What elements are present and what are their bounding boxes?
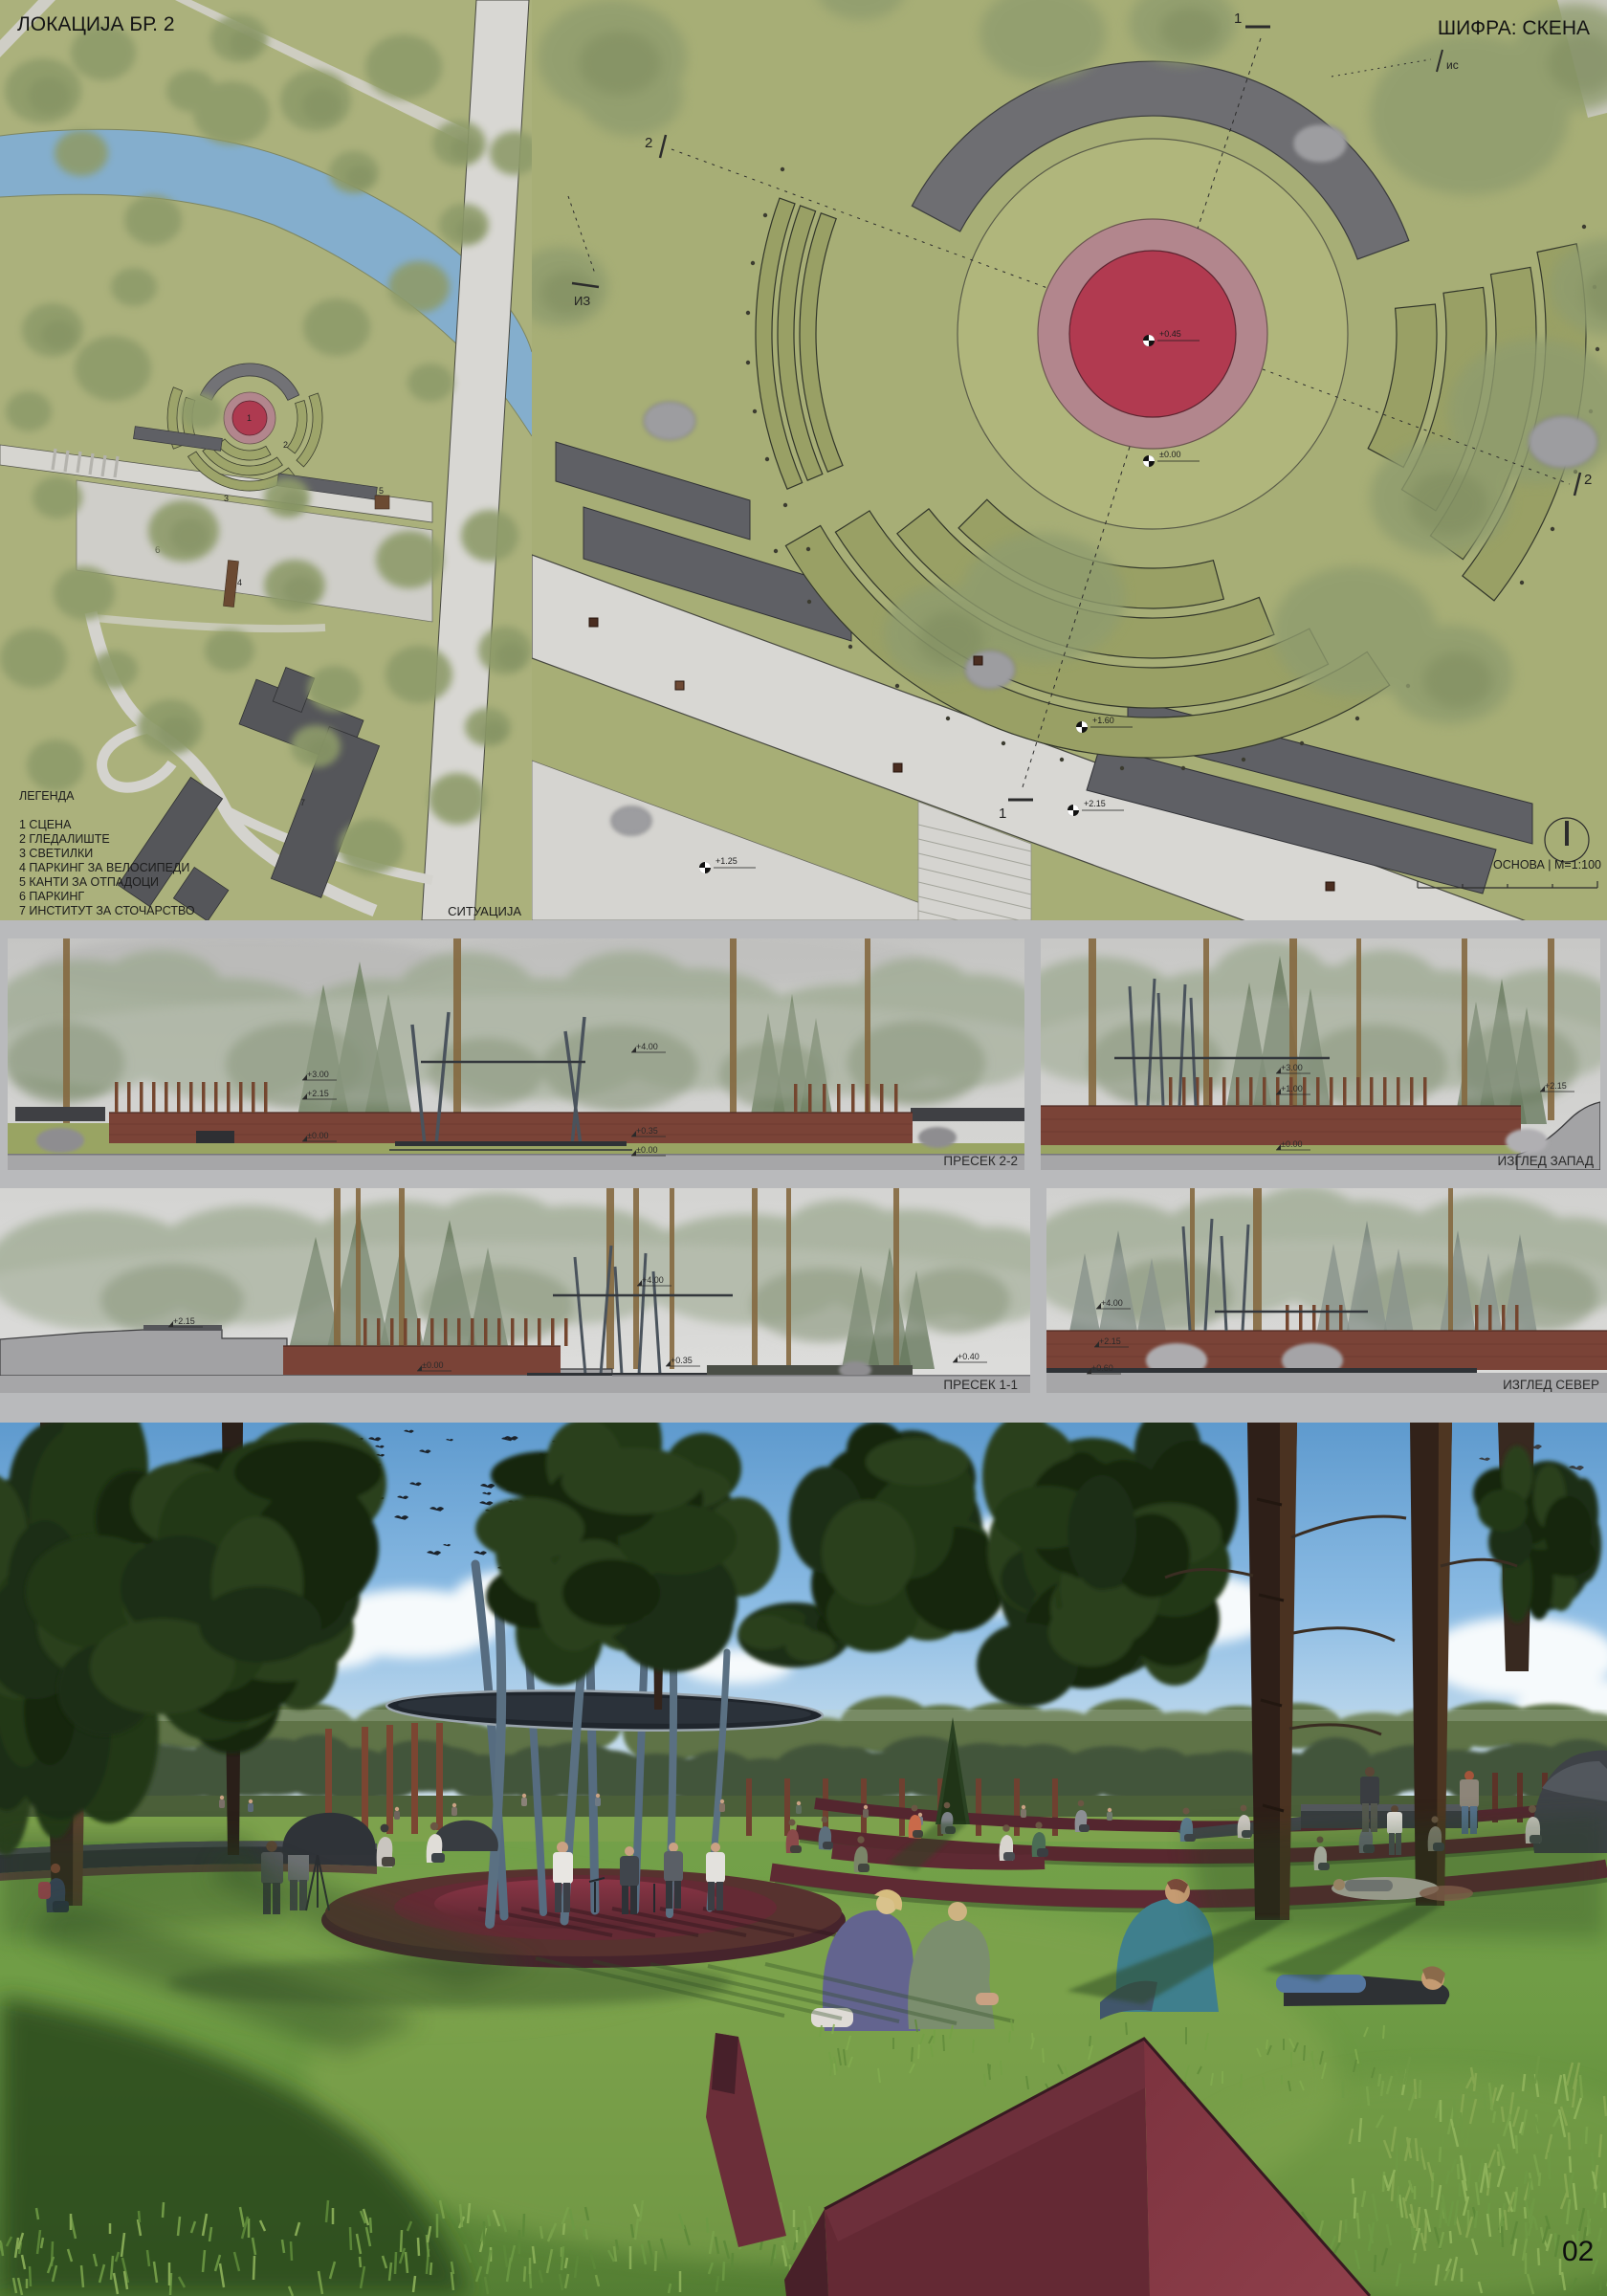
svg-text:+2.15: +2.15 bbox=[1545, 1081, 1567, 1091]
svg-text:2 ГЛЕДАЛИШТЕ: 2 ГЛЕДАЛИШТЕ bbox=[19, 832, 110, 846]
svg-text:+0.40: +0.40 bbox=[958, 1352, 980, 1361]
svg-text:+2.15: +2.15 bbox=[307, 1089, 329, 1098]
svg-text:1: 1 bbox=[999, 806, 1006, 822]
svg-text:+3.00: +3.00 bbox=[307, 1070, 329, 1079]
svg-text:ПРЕСЕК 1-1: ПРЕСЕК 1-1 bbox=[943, 1378, 1018, 1392]
svg-text:+0.35: +0.35 bbox=[636, 1126, 658, 1136]
svg-text:+1.00: +1.00 bbox=[1281, 1084, 1303, 1093]
svg-text:ЛЕГЕНДА: ЛЕГЕНДА bbox=[19, 789, 75, 803]
svg-text:7: 7 bbox=[300, 798, 305, 807]
svg-text:ОСНОВА | М=1:100: ОСНОВА | М=1:100 bbox=[1493, 858, 1601, 872]
svg-text:+0.45: +0.45 bbox=[1159, 329, 1181, 339]
svg-text:+4.00: +4.00 bbox=[1101, 1298, 1123, 1308]
svg-text:5 КАНТИ ЗА ОТПАДОЦИ: 5 КАНТИ ЗА ОТПАДОЦИ bbox=[19, 875, 159, 889]
svg-text:±0.00: ±0.00 bbox=[636, 1145, 657, 1155]
svg-text:ИЗ: ИЗ bbox=[574, 294, 590, 308]
svg-text:+4.00: +4.00 bbox=[636, 1042, 658, 1051]
svg-text:СИТУАЦИЈА: СИТУАЦИЈА bbox=[448, 904, 521, 918]
svg-text:1 СЦЕНА: 1 СЦЕНА bbox=[19, 818, 72, 831]
svg-text:+2.15: +2.15 bbox=[173, 1316, 195, 1326]
svg-text:±0.00: ±0.00 bbox=[1159, 450, 1180, 459]
svg-text:3 СВЕТИЛКИ: 3 СВЕТИЛКИ bbox=[19, 847, 93, 860]
svg-text:+1.60: +1.60 bbox=[1092, 716, 1114, 725]
svg-text:ЛОКАЦИЈА БР. 2: ЛОКАЦИЈА БР. 2 bbox=[17, 13, 175, 35]
svg-text:±0.00: ±0.00 bbox=[1281, 1139, 1302, 1149]
svg-text:6 ПАРКИНГ: 6 ПАРКИНГ bbox=[19, 890, 84, 903]
svg-text:4: 4 bbox=[237, 578, 242, 587]
svg-text:+0.35: +0.35 bbox=[671, 1356, 693, 1365]
svg-text:7 ИНСТИТУТ ЗА СТОЧАРСТВО: 7 ИНСТИТУТ ЗА СТОЧАРСТВО bbox=[19, 904, 195, 917]
svg-text:4 ПАРКИНГ ЗА ВЕЛОСИПЕДИ: 4 ПАРКИНГ ЗА ВЕЛОСИПЕДИ bbox=[19, 861, 189, 874]
svg-text:+2.15: +2.15 bbox=[1084, 799, 1106, 808]
svg-text:±0.00: ±0.00 bbox=[422, 1360, 443, 1370]
svg-text:+0.60: +0.60 bbox=[1091, 1363, 1113, 1373]
svg-text:+1.25: +1.25 bbox=[715, 856, 737, 866]
svg-text:2: 2 bbox=[283, 440, 288, 450]
svg-text:±0.00: ±0.00 bbox=[307, 1131, 328, 1140]
svg-text:+3.00: +3.00 bbox=[1281, 1063, 1303, 1072]
svg-text:ис: ис bbox=[1446, 58, 1459, 72]
svg-text:2: 2 bbox=[645, 135, 652, 151]
svg-text:ИЗГЛЕД СЕВЕР: ИЗГЛЕД СЕВЕР bbox=[1503, 1378, 1599, 1392]
svg-text:+2.15: +2.15 bbox=[1099, 1336, 1121, 1346]
svg-text:3: 3 bbox=[224, 494, 229, 503]
svg-text:5: 5 bbox=[379, 486, 384, 496]
svg-text:2: 2 bbox=[1584, 472, 1592, 488]
svg-text:ПРЕСЕК 2-2: ПРЕСЕК 2-2 bbox=[943, 1154, 1018, 1168]
svg-text:1: 1 bbox=[247, 413, 252, 423]
svg-text:+4.00: +4.00 bbox=[642, 1275, 664, 1285]
svg-text:ИЗГЛЕД ЗАПАД: ИЗГЛЕД ЗАПАД bbox=[1498, 1154, 1594, 1168]
svg-text:ШИФРА: СКЕНА: ШИФРА: СКЕНА bbox=[1438, 17, 1590, 39]
svg-text:1: 1 bbox=[1234, 11, 1242, 27]
